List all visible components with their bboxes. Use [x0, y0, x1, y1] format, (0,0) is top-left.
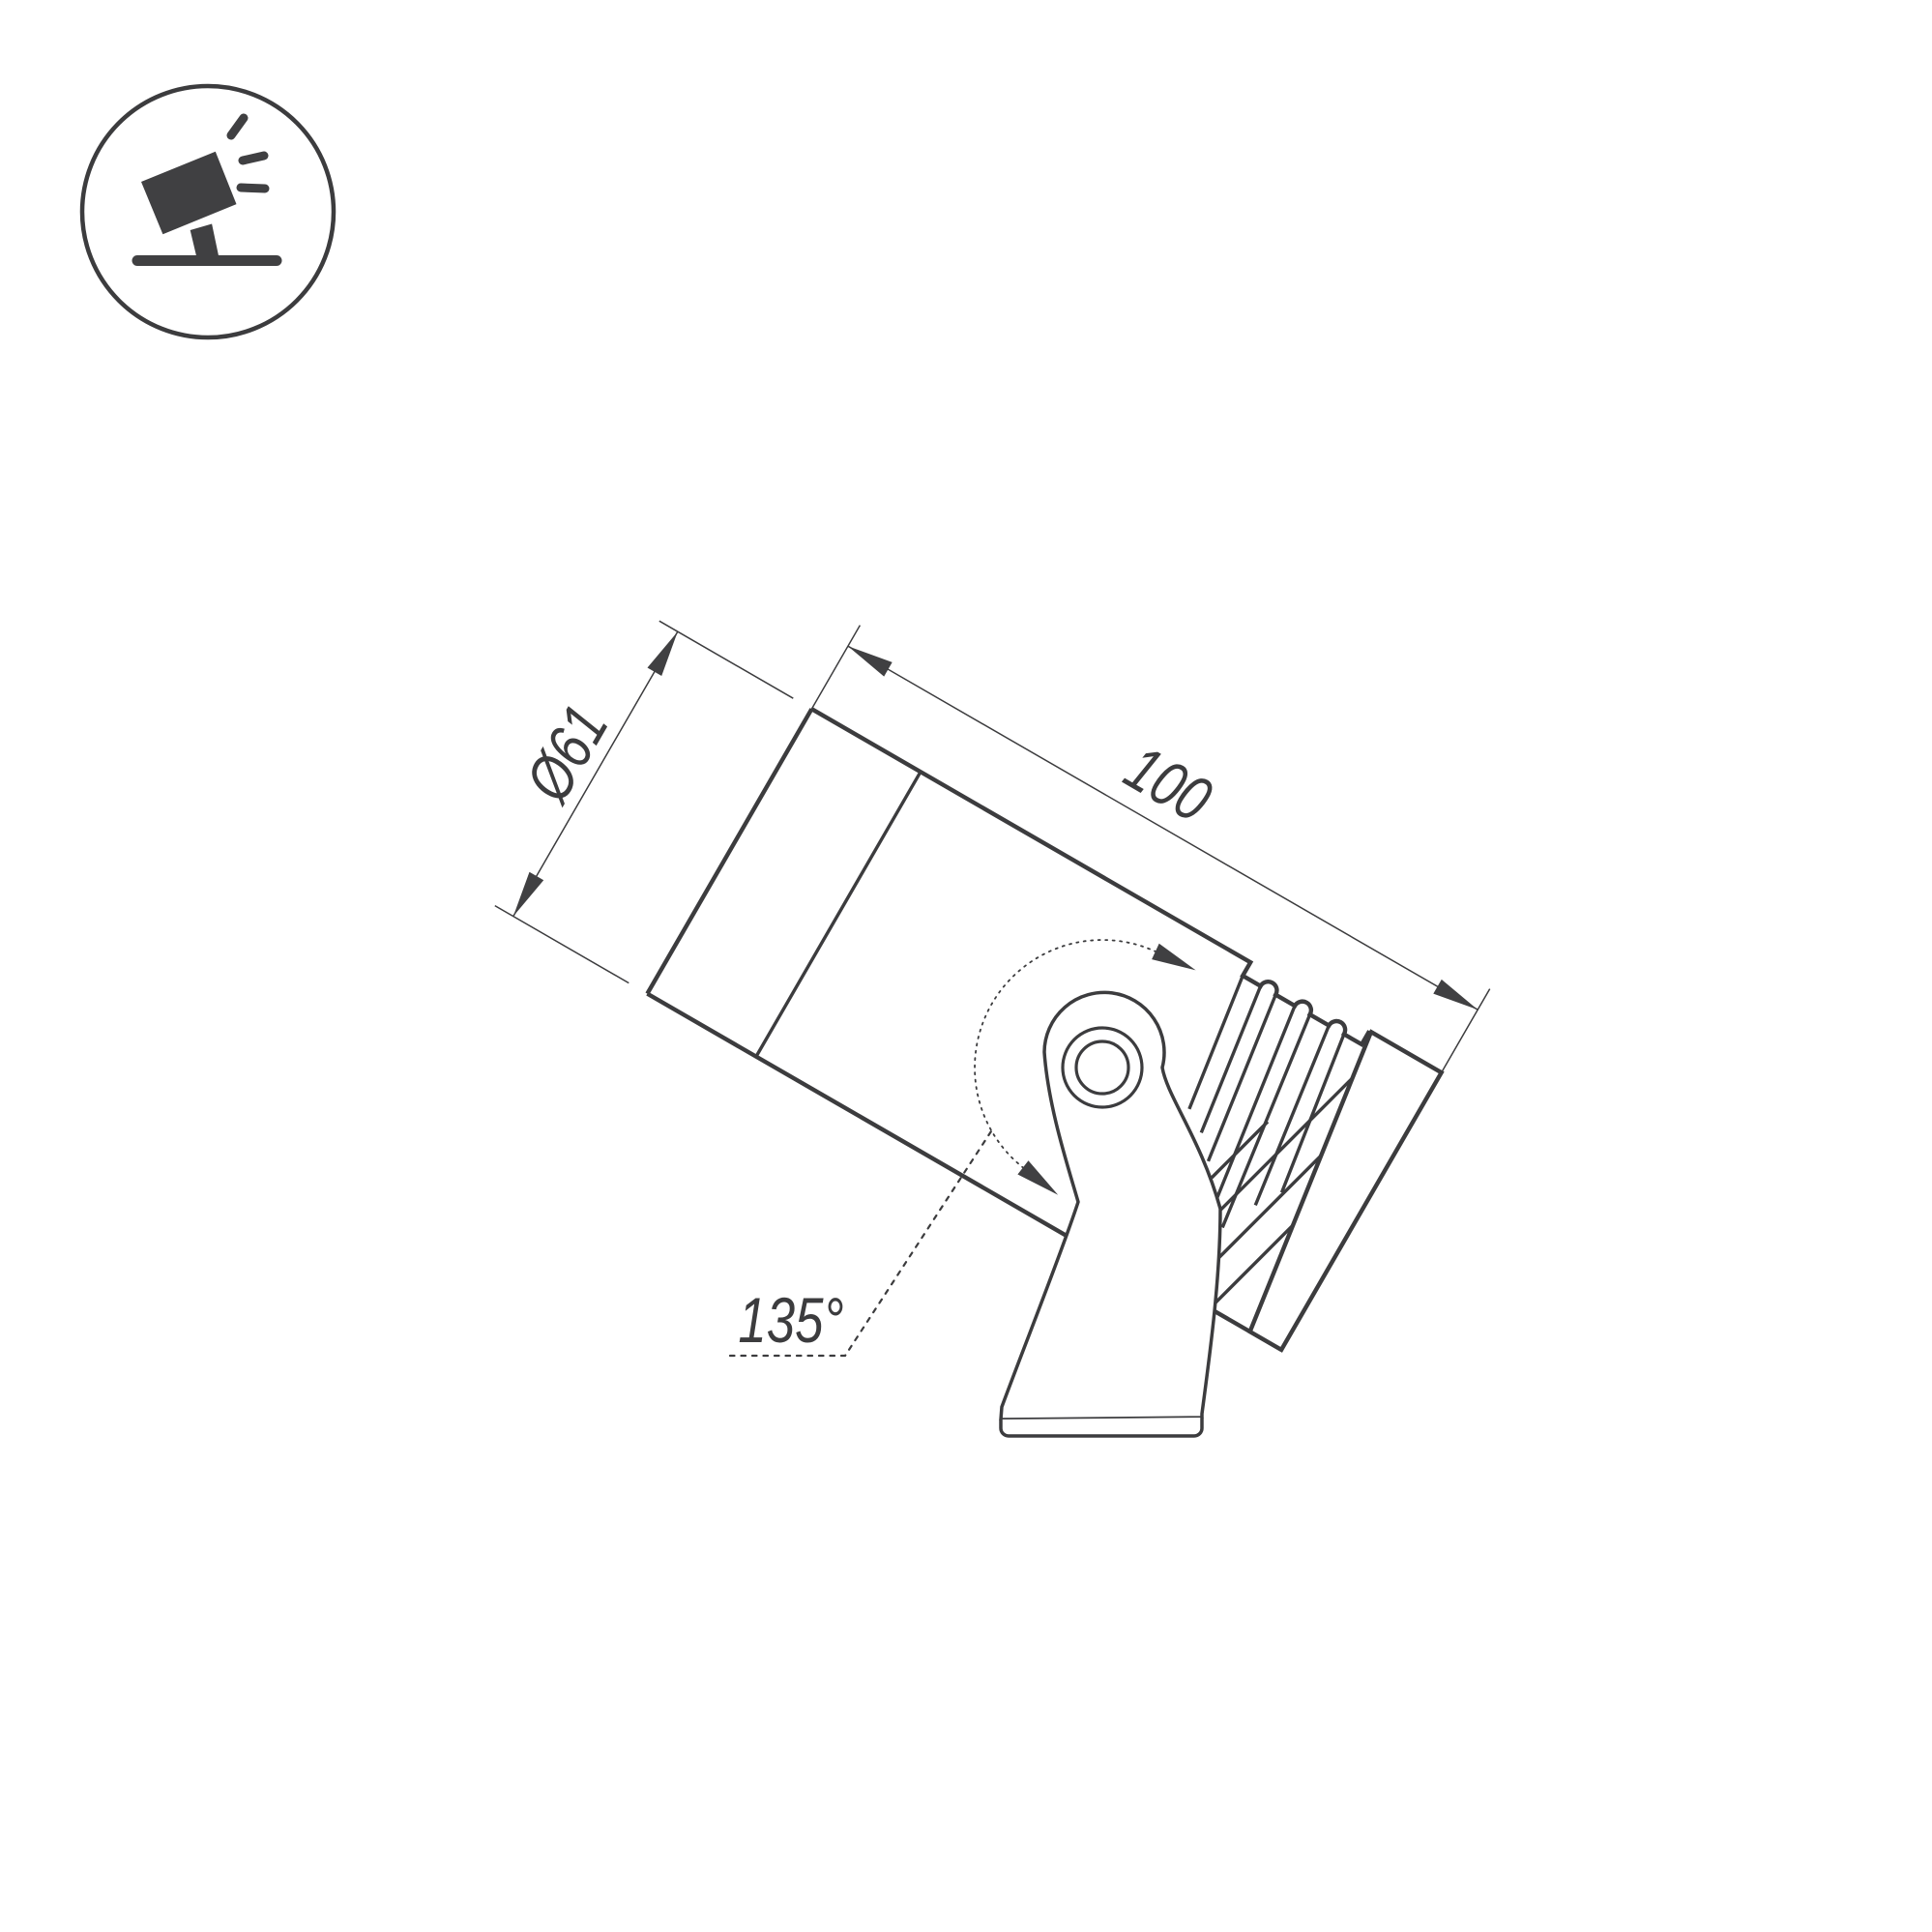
- svg-text:135°: 135°: [738, 1284, 843, 1356]
